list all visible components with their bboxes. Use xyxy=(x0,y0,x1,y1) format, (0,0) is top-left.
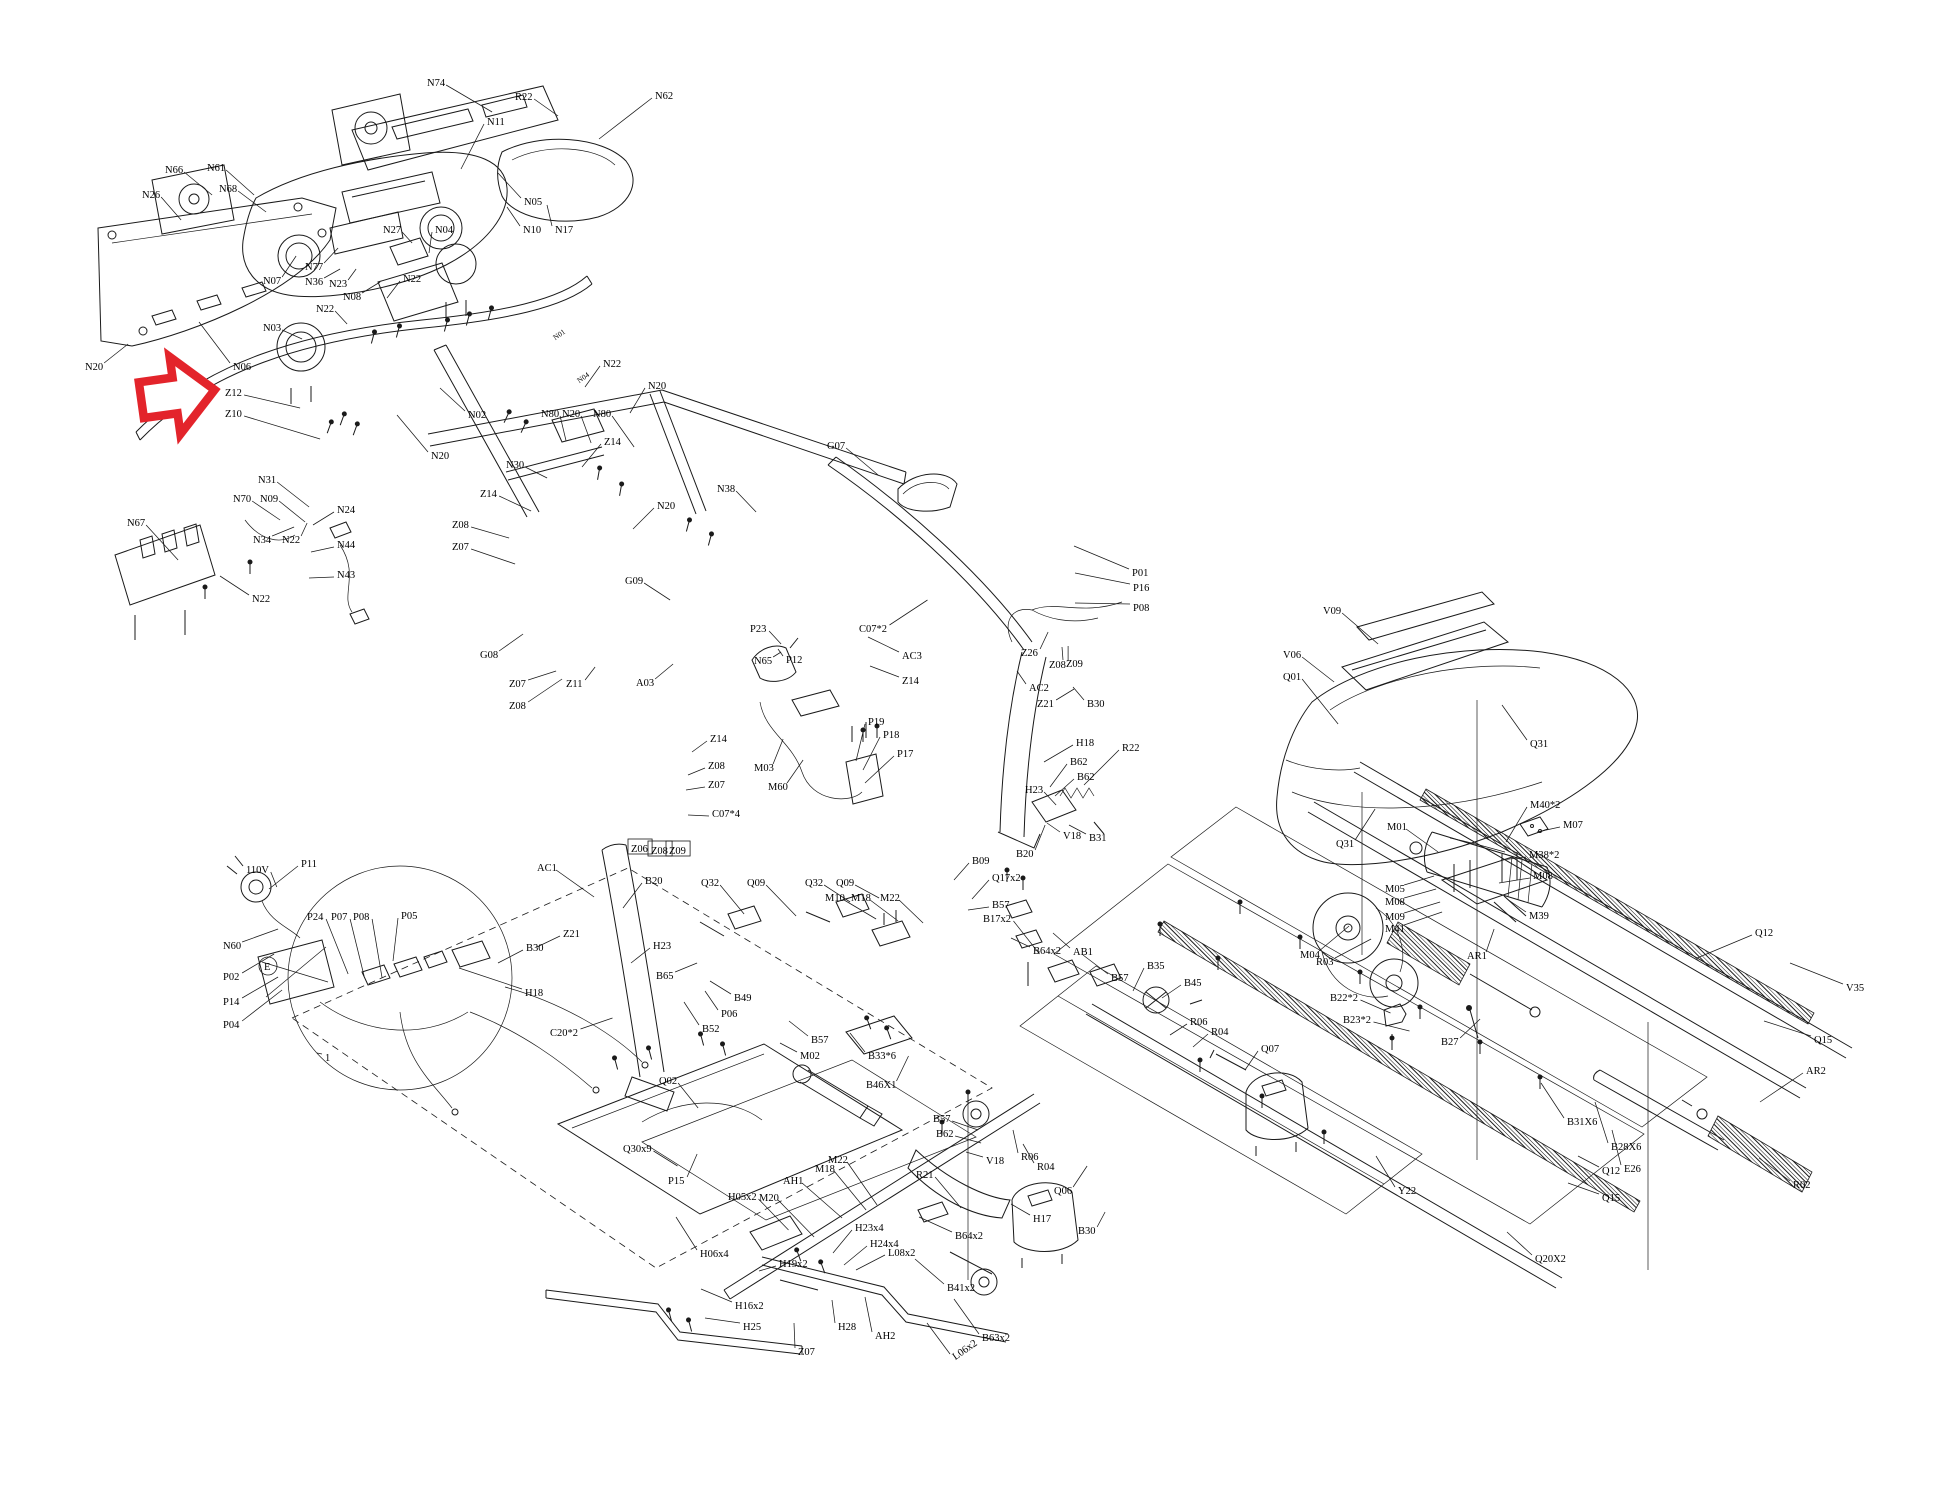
leader-line xyxy=(1075,603,1130,604)
part-label: P17 xyxy=(897,749,913,760)
part-label: Z14 xyxy=(902,676,920,687)
part-label: B57 xyxy=(811,1035,829,1046)
leader-line xyxy=(1162,985,1181,998)
leader-line xyxy=(1013,1130,1018,1153)
leader-line xyxy=(397,415,428,452)
part-label: N24 xyxy=(337,505,356,516)
leader-line xyxy=(1011,1204,1030,1215)
leader-line xyxy=(1790,963,1843,984)
leader-line xyxy=(897,1056,909,1081)
part-label: N10 xyxy=(523,225,541,236)
leader-line xyxy=(1050,764,1067,787)
leader-line xyxy=(794,1323,795,1348)
leader-line xyxy=(865,1297,872,1332)
part-label: B64x2 xyxy=(955,1231,983,1242)
part-label: B49 xyxy=(734,993,752,1004)
part-label: Z08 xyxy=(708,761,725,772)
part-label: N34 xyxy=(253,535,272,546)
leader-line xyxy=(1133,968,1144,991)
part-label: Z12 xyxy=(225,388,242,399)
leader-line xyxy=(1342,613,1378,644)
part-label: M60 xyxy=(768,782,788,793)
part-label: N61 xyxy=(207,163,225,174)
part-label: N36 xyxy=(305,277,323,288)
part-label: H19x2 xyxy=(779,1259,808,1270)
part-label: P08 xyxy=(1133,603,1149,614)
part-label: N22 xyxy=(403,274,421,285)
leader-line xyxy=(865,756,894,783)
leader-line xyxy=(1578,1156,1599,1167)
leader-line xyxy=(1056,689,1074,700)
leader-line xyxy=(915,1259,944,1284)
part-label: H18 xyxy=(525,988,543,999)
part-label: Z07 xyxy=(798,1347,815,1358)
leader-line xyxy=(242,977,278,998)
leader-line xyxy=(244,395,300,408)
leader-line xyxy=(1541,1083,1564,1118)
leader-line xyxy=(1073,1166,1087,1187)
part-label: N22 xyxy=(603,359,621,370)
leader-line xyxy=(525,467,547,478)
part-label: P23 xyxy=(750,624,766,635)
part-label: Z08 xyxy=(509,701,526,712)
leader-line xyxy=(654,1151,678,1166)
leader-line xyxy=(372,919,382,978)
leader-line xyxy=(534,99,558,116)
part-label: Q12 xyxy=(1755,928,1773,939)
part-label: Z14 xyxy=(710,734,728,745)
part-label: H06x4 xyxy=(700,1249,729,1260)
leader-line xyxy=(282,256,296,277)
part-label: A03 xyxy=(636,678,654,689)
part-label: N80 xyxy=(541,409,559,420)
part-label: N31 xyxy=(258,475,276,486)
part-label: Q09 xyxy=(747,878,765,889)
part-label: N23 xyxy=(329,279,347,290)
part-label: Q01 xyxy=(1283,672,1301,683)
part-label: V06 xyxy=(1283,650,1301,661)
part-label: C07*4 xyxy=(712,809,741,820)
leader-line xyxy=(688,815,709,816)
part-label: P19 xyxy=(868,717,884,728)
part-label: N03 xyxy=(263,323,281,334)
leader-line xyxy=(1507,1232,1532,1255)
part-label: P02 xyxy=(223,972,239,983)
part-label: E xyxy=(264,962,270,973)
part-label: P04 xyxy=(223,1020,240,1031)
leader-line xyxy=(1319,926,1349,951)
leader-line xyxy=(471,549,515,564)
part-label: AR2 xyxy=(1806,1066,1826,1077)
leader-line xyxy=(1044,745,1073,762)
part-label: R02 xyxy=(1793,1180,1811,1191)
part-label: Q20X2 xyxy=(1535,1254,1566,1265)
part-label: B31X6 xyxy=(1567,1117,1597,1128)
leader-line xyxy=(778,649,783,656)
part-label: N80 xyxy=(593,409,611,420)
part-label: Z08 xyxy=(1049,660,1066,671)
leader-line xyxy=(773,739,783,764)
leader-line xyxy=(675,963,697,972)
leader-line xyxy=(599,98,652,139)
leader-line xyxy=(769,631,781,644)
leader-line xyxy=(1404,889,1436,898)
leader-line xyxy=(856,1255,885,1270)
part-label: Z09 xyxy=(669,846,686,857)
part-label: H28 xyxy=(838,1322,856,1333)
leader-line xyxy=(972,880,989,899)
leader-line xyxy=(199,322,230,363)
part-label: N04 xyxy=(435,225,454,236)
part-label: B57 xyxy=(933,1114,951,1125)
leader-line xyxy=(844,1246,867,1265)
part-label: N67 xyxy=(127,518,145,529)
part-label: B31 xyxy=(1089,833,1107,844)
leader-line xyxy=(242,929,278,942)
part-label: B20 xyxy=(645,876,663,887)
leader-line xyxy=(1361,1000,1391,1013)
part-label: Z14 xyxy=(480,489,498,500)
leader-line xyxy=(720,885,744,914)
part-label: Q15 xyxy=(1602,1193,1620,1204)
leader-line xyxy=(244,416,320,439)
part-label: G09 xyxy=(625,576,643,587)
part-label: N17 xyxy=(555,225,573,236)
part-label: Q06 xyxy=(1054,1186,1072,1197)
leader-line xyxy=(350,919,364,976)
part-label: Q09 xyxy=(836,878,854,889)
leader-line xyxy=(279,501,305,522)
leader-line xyxy=(459,968,522,989)
leader-line xyxy=(1035,825,1045,850)
part-label: AB1 xyxy=(1073,947,1093,958)
part-label: M09 xyxy=(1385,912,1405,923)
leader-line xyxy=(1097,1212,1105,1227)
part-label: B41x2 xyxy=(947,1283,975,1294)
part-label: N22 xyxy=(282,535,300,546)
part-label: P01 xyxy=(1132,568,1148,579)
leader-line xyxy=(1074,546,1129,569)
leader-line xyxy=(919,1217,952,1232)
part-label: B62 xyxy=(1070,757,1088,768)
part-label: AH1 xyxy=(783,1176,803,1187)
leader-line xyxy=(1502,705,1527,740)
part-label: N20 xyxy=(562,409,580,420)
part-label: Z07 xyxy=(509,679,526,690)
part-label: R03 xyxy=(1316,957,1334,968)
leader-line xyxy=(833,1230,852,1253)
part-label: M38*2 xyxy=(1529,850,1559,861)
part-label: M08 xyxy=(1385,897,1405,908)
part-label: N01 xyxy=(551,327,567,342)
part-label: N05 xyxy=(524,197,542,208)
part-label: E26 xyxy=(1624,1164,1641,1175)
highlight-arrow-icon xyxy=(136,351,220,439)
part-label: Z26 xyxy=(1021,648,1038,659)
leader-line xyxy=(676,1217,697,1250)
leader-line xyxy=(499,496,531,511)
part-label: M39 xyxy=(1529,911,1549,922)
leader-line xyxy=(335,311,347,324)
leader-line xyxy=(313,512,334,525)
part-label: N22 xyxy=(316,304,334,315)
part-label: N11 xyxy=(487,117,505,128)
leader-line xyxy=(1404,902,1440,913)
part-label: H23x4 xyxy=(855,1223,884,1234)
leader-line xyxy=(1697,935,1752,958)
part-label: L08x2 xyxy=(888,1248,915,1259)
leader-line xyxy=(220,576,249,595)
part-label: M20 xyxy=(759,1193,779,1204)
part-label: Q17x2 xyxy=(992,873,1021,884)
leader-line xyxy=(787,760,803,783)
part-label: N44 xyxy=(337,540,356,551)
part-label: 110V xyxy=(246,865,269,876)
leader-line xyxy=(868,637,899,652)
part-label: P12 xyxy=(786,655,802,666)
leader-line xyxy=(773,652,781,657)
part-label: Z07 xyxy=(708,780,725,791)
part-label: M22 xyxy=(880,893,900,904)
leader-line xyxy=(326,919,348,974)
part-label: B63x2 xyxy=(982,1333,1010,1344)
leader-line xyxy=(847,1162,877,1205)
leader-line xyxy=(644,583,670,600)
part-label: Q32 xyxy=(701,878,719,889)
part-label: N02 xyxy=(468,410,486,421)
part-label: AH2 xyxy=(875,1331,895,1342)
part-label: R22 xyxy=(1122,743,1140,754)
part-label: N66 xyxy=(165,165,183,176)
leader-line xyxy=(927,1323,950,1354)
part-label: N20 xyxy=(657,501,675,512)
part-label: M07 xyxy=(1563,820,1583,831)
part-label: G07 xyxy=(827,441,845,452)
part-label: N62 xyxy=(655,91,673,102)
leader-line xyxy=(1760,1073,1803,1102)
leader-line xyxy=(1073,687,1084,700)
leader-line xyxy=(780,1043,797,1052)
part-label: V18 xyxy=(986,1156,1004,1167)
part-label: N70 xyxy=(233,494,251,505)
leader-line xyxy=(954,863,969,880)
part-label: C20*2 xyxy=(550,1028,578,1039)
part-label: B62 xyxy=(936,1129,954,1140)
leader-line xyxy=(710,981,731,994)
part-label: Q32 xyxy=(805,878,823,889)
leader-line xyxy=(581,416,591,443)
part-label: C07*2 xyxy=(859,624,887,635)
leader-line xyxy=(461,124,484,169)
part-label: M01 xyxy=(1387,822,1407,833)
leader-line xyxy=(547,205,552,226)
part-label: P08 xyxy=(353,912,369,923)
part-label: B20 xyxy=(1016,849,1034,860)
diagram-page: N74R22N11N62N05N10N17N66N61N26N68N27N04N… xyxy=(0,0,1941,1500)
part-label: H23 xyxy=(1025,785,1043,796)
leader-line xyxy=(1335,939,1371,958)
leader-line xyxy=(528,679,562,702)
leader-line xyxy=(834,1171,866,1210)
leader-line xyxy=(1506,807,1527,842)
leader-line xyxy=(301,523,307,536)
part-label: Q12 xyxy=(1602,1166,1620,1177)
part-label: P24 xyxy=(307,912,324,923)
part-label: B64x2 xyxy=(1033,946,1061,957)
part-label: Y22 xyxy=(1398,1186,1416,1197)
leader-line xyxy=(161,197,181,220)
part-label: R04 xyxy=(1037,1162,1055,1173)
part-label: P18 xyxy=(883,730,899,741)
leader-line xyxy=(362,282,380,293)
part-label: R21 xyxy=(916,1170,934,1181)
part-label: N77 xyxy=(305,262,323,273)
part-label: M02 xyxy=(800,1051,820,1062)
part-labels: N74R22N11N62N05N10N17N66N61N26N68N27N04N… xyxy=(85,78,1864,1363)
leader-line xyxy=(581,1018,613,1029)
leader-line xyxy=(1044,792,1056,805)
part-label: N06 xyxy=(233,362,251,373)
part-label: V09 xyxy=(1323,606,1341,617)
leader-line xyxy=(507,207,520,226)
leader-line xyxy=(324,269,340,278)
leader-line xyxy=(633,508,654,529)
part-label: B30 xyxy=(1078,1226,1096,1237)
leader-line xyxy=(890,600,928,625)
part-label: N38 xyxy=(717,484,735,495)
leader-line xyxy=(446,85,492,112)
diagram-linework xyxy=(98,86,1852,1354)
part-label: Z21 xyxy=(1037,699,1054,710)
part-label: Q02 xyxy=(659,1076,677,1087)
leader-line xyxy=(528,671,556,680)
part-label: N22 xyxy=(252,594,270,605)
leader-line xyxy=(705,991,718,1010)
part-label: P06 xyxy=(721,1009,737,1020)
part-label: B57 xyxy=(1111,973,1129,984)
part-label: R04 xyxy=(1211,1027,1229,1038)
part-label: Z21 xyxy=(563,929,580,940)
part-label: N60 xyxy=(223,941,241,952)
leader-line xyxy=(1040,632,1048,649)
leader-line xyxy=(1047,823,1060,832)
leader-line xyxy=(393,918,398,961)
leader-line xyxy=(870,666,899,677)
part-label: N07 xyxy=(263,276,281,287)
part-label: M10 xyxy=(825,893,845,904)
leader-line xyxy=(282,330,302,339)
leader-line xyxy=(1170,1024,1187,1035)
part-label: M41 xyxy=(1385,924,1405,935)
leader-line xyxy=(705,1318,740,1323)
part-label: H05x2 xyxy=(728,1192,757,1203)
part-label: N27 xyxy=(383,225,401,236)
leader-line xyxy=(471,527,509,538)
part-label: B22*2 xyxy=(1330,993,1358,1004)
leader-line xyxy=(766,885,796,916)
leader-line xyxy=(692,741,707,752)
leader-line xyxy=(387,281,400,298)
leader-line xyxy=(582,444,601,467)
part-label: N20 xyxy=(648,381,666,392)
part-label: N08 xyxy=(343,292,361,303)
part-label: Z09 xyxy=(1066,659,1083,670)
leader-line xyxy=(1193,1034,1208,1047)
part-label: Z10 xyxy=(225,409,242,420)
leader-line xyxy=(1083,955,1108,974)
part-label: H16x2 xyxy=(735,1301,764,1312)
leader-line xyxy=(954,1299,979,1334)
part-label: 1 xyxy=(325,1053,330,1064)
parts-diagram: N74R22N11N62N05N10N17N66N61N26N68N27N04N… xyxy=(0,0,1941,1500)
leader-line xyxy=(1302,679,1338,724)
part-label: P16 xyxy=(1133,583,1149,594)
part-label: M18 xyxy=(851,893,871,904)
part-label: N43 xyxy=(337,570,355,581)
leader-line xyxy=(623,883,642,908)
part-label: B09 xyxy=(972,856,990,867)
part-label: H17 xyxy=(1033,1214,1051,1225)
leader-line xyxy=(1302,657,1334,682)
leader-line xyxy=(1486,929,1494,952)
part-label: H25 xyxy=(743,1322,761,1333)
leader-line xyxy=(556,870,594,897)
leader-line xyxy=(1062,647,1063,660)
leader-line xyxy=(686,787,705,790)
leader-line xyxy=(324,248,338,263)
part-label: G08 xyxy=(480,650,498,661)
leader-line xyxy=(309,577,334,578)
part-label: Z11 xyxy=(566,679,583,690)
part-label: V18 xyxy=(1063,831,1081,842)
part-label: P11 xyxy=(301,859,317,870)
part-label: L06x2 xyxy=(951,1338,980,1363)
leader-line xyxy=(789,1021,808,1036)
part-label: N74 xyxy=(427,78,446,89)
part-label: B46X1 xyxy=(866,1080,896,1091)
part-label: Z06 xyxy=(631,844,648,855)
part-label: AR1 xyxy=(1467,951,1487,962)
leader-line xyxy=(1017,671,1026,684)
leader-line xyxy=(1245,1051,1258,1070)
part-label: P14 xyxy=(223,997,240,1008)
part-label: B57 xyxy=(992,900,1010,911)
leader-line xyxy=(966,1152,983,1157)
part-label: N26 xyxy=(142,190,160,201)
part-label: Q30x9 xyxy=(623,1144,652,1155)
part-label: M03 xyxy=(754,763,774,774)
leader-line xyxy=(968,907,989,910)
leader-line xyxy=(688,768,705,775)
leader-line xyxy=(630,388,645,413)
part-label: AC2 xyxy=(1029,683,1049,694)
part-label: AC3 xyxy=(902,651,922,662)
part-label: N09 xyxy=(260,494,278,505)
leader-line xyxy=(802,1183,842,1218)
part-label: B35 xyxy=(1147,961,1165,972)
part-label: B30 xyxy=(1087,699,1105,710)
part-label: B17x2 xyxy=(983,914,1011,925)
leader-line xyxy=(348,269,356,280)
part-label: B30 xyxy=(526,943,544,954)
part-label: R06 xyxy=(1190,1017,1208,1028)
part-label: N04 xyxy=(575,370,591,385)
leader-line xyxy=(655,664,673,679)
leader-line xyxy=(104,344,128,363)
part-label: H18 xyxy=(1076,738,1094,749)
leader-line xyxy=(311,547,334,552)
part-label: H23 xyxy=(653,941,671,952)
